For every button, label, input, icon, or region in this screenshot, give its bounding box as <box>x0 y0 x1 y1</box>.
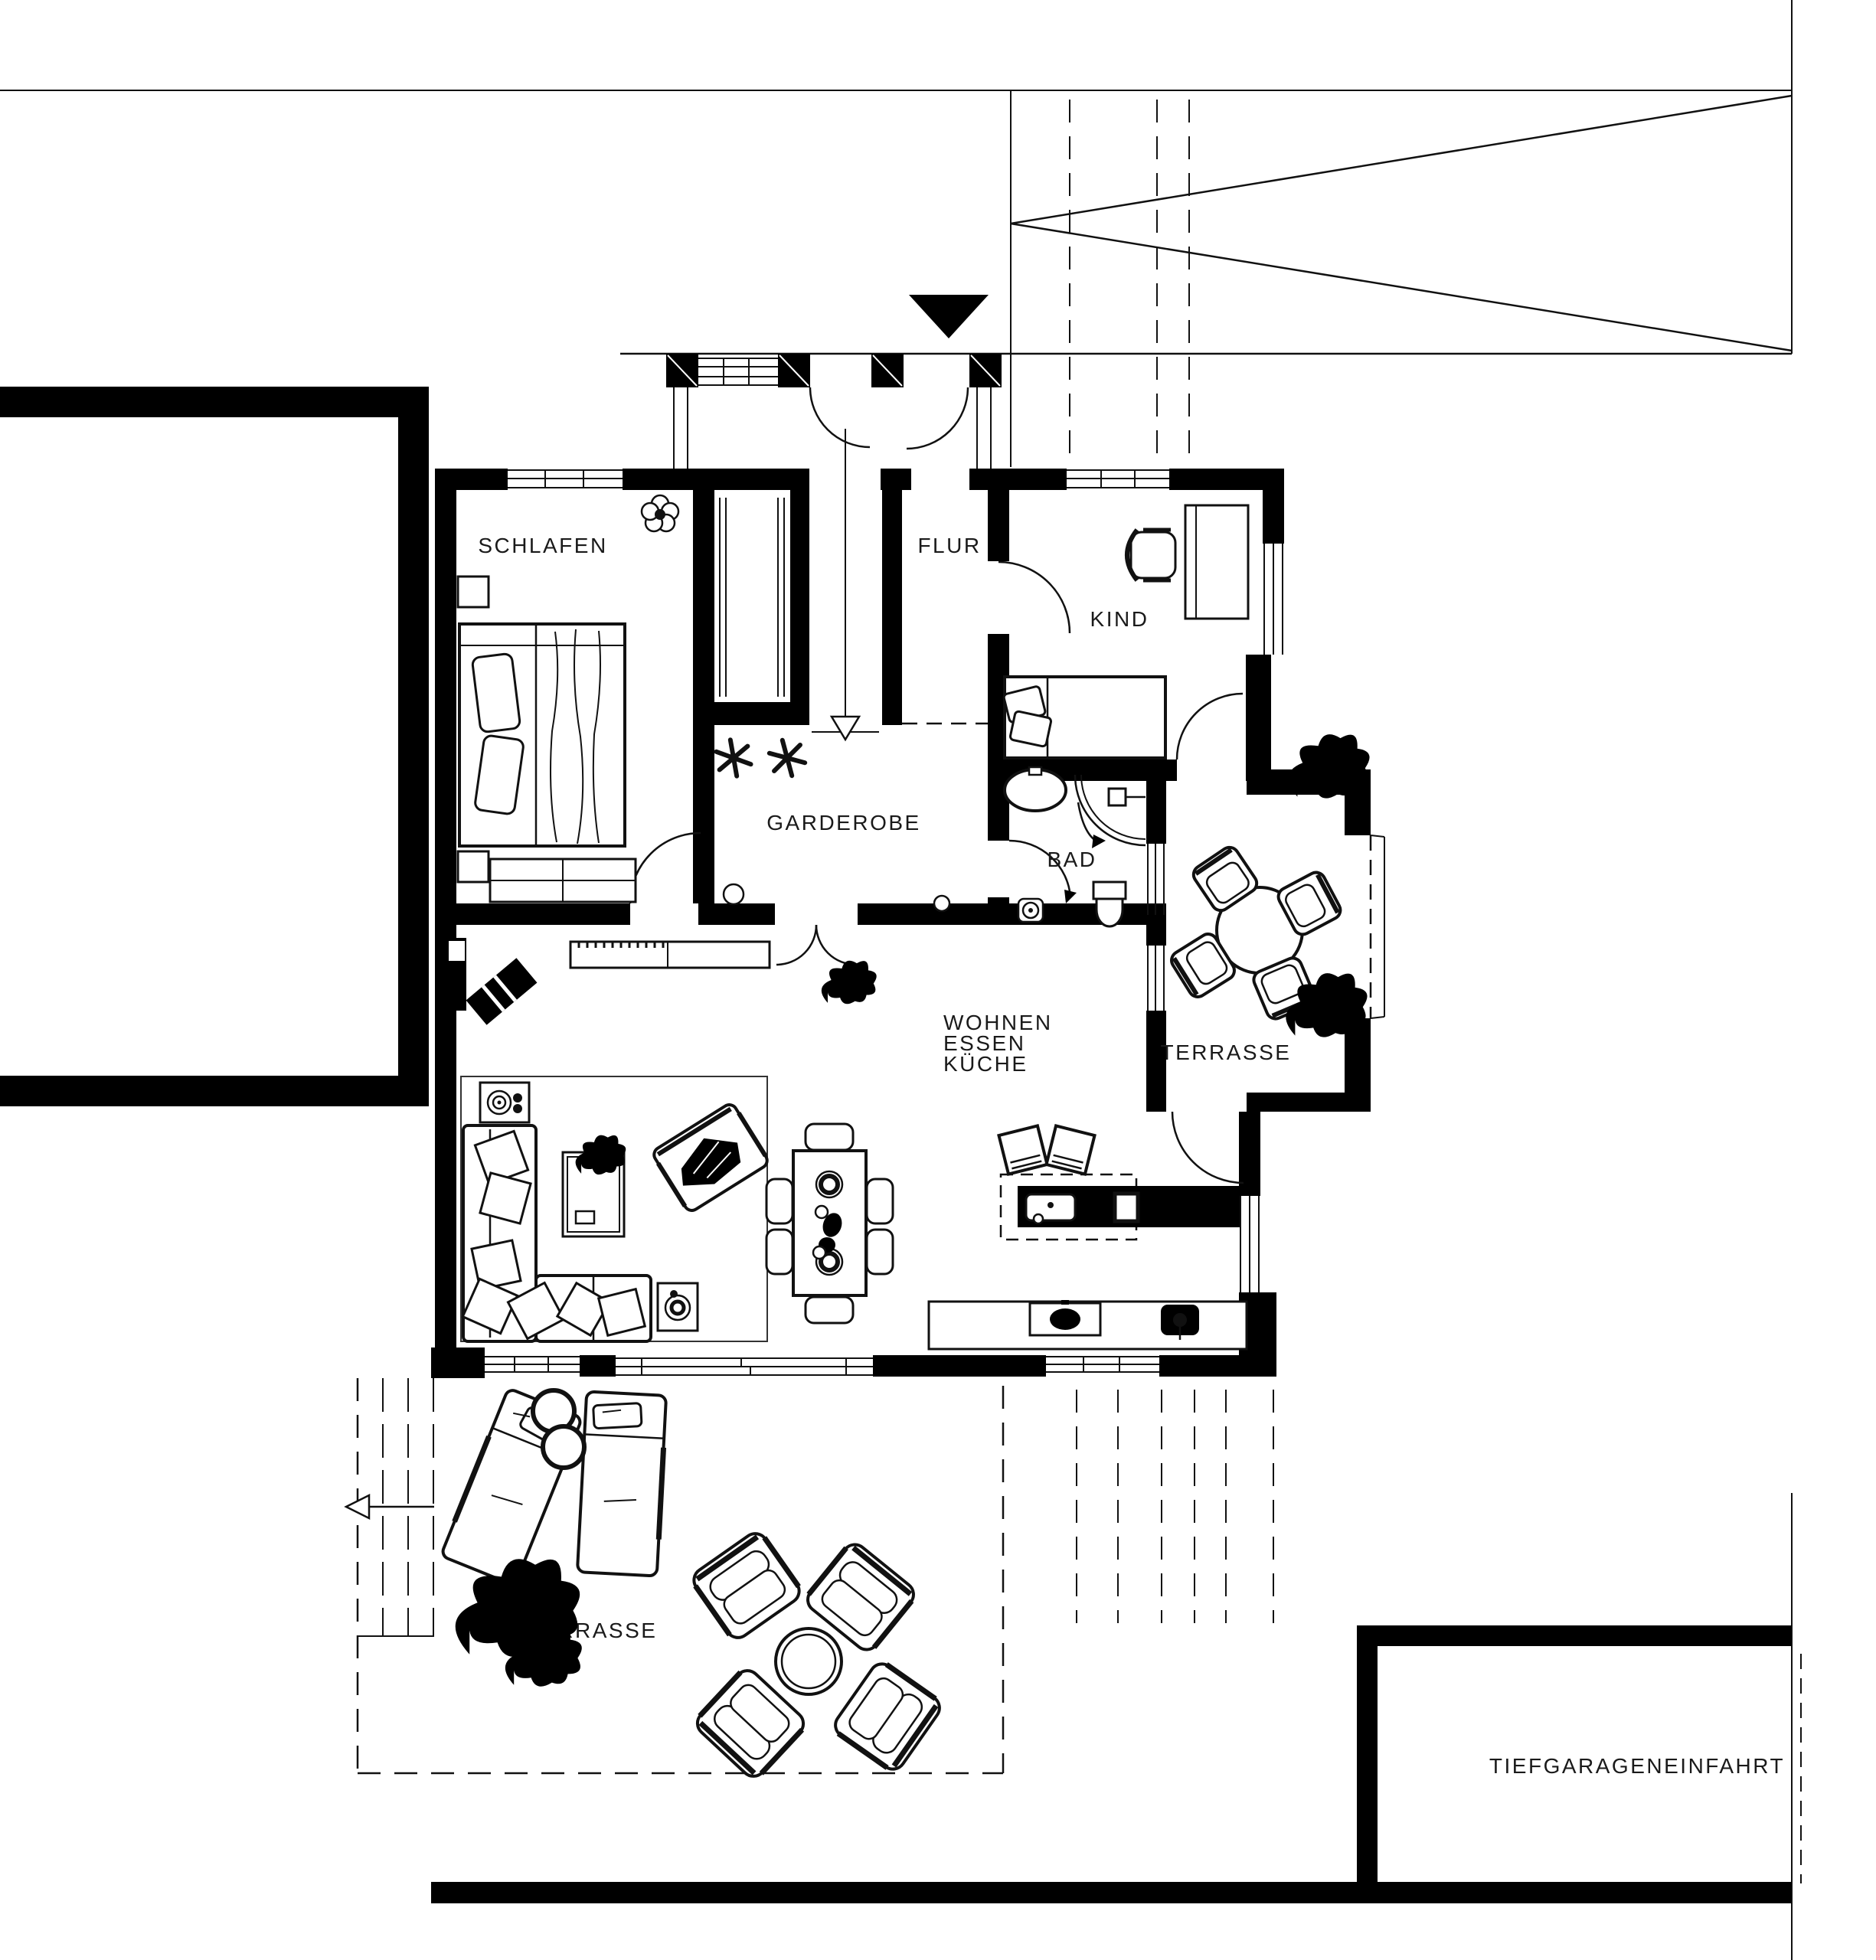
wardrobe <box>490 859 636 902</box>
entrance-marker-icon <box>909 295 989 338</box>
washbasin <box>1005 767 1066 811</box>
kind-flur-door-swing <box>998 562 1070 633</box>
dining-table <box>793 1151 866 1295</box>
room-label-kind: KIND <box>1090 607 1149 631</box>
coat-hook-icon <box>716 740 805 776</box>
garage-ramp-zigzag <box>1011 96 1792 351</box>
terrace-door-swing <box>1172 1112 1244 1183</box>
floor-plan-canvas: TIEFGARAGENEINFAHRT <box>0 0 1876 1960</box>
room-label-garderobe: GARDEROBE <box>766 811 920 835</box>
sideboard <box>570 942 770 968</box>
desk-chair <box>1127 530 1175 580</box>
terrace-south: TERRASSE <box>346 1378 1003 1782</box>
exterior-steps <box>346 1378 434 1636</box>
floor-drain <box>1018 899 1043 922</box>
lounge-chair <box>652 1102 770 1213</box>
plant-icon <box>642 495 678 531</box>
room-label-terrasse-east: TERRASSE <box>1161 1040 1292 1064</box>
room-label-flur: FLUR <box>917 534 981 557</box>
room-schlafen: SCHLAFEN <box>458 495 784 902</box>
coffee-table <box>563 1135 626 1236</box>
desk <box>1185 505 1248 619</box>
schlafen-door-swing <box>630 833 701 903</box>
armchair <box>831 1659 944 1774</box>
nightstand <box>458 577 489 607</box>
underground-garage: TIEFGARAGENEINFAHRT <box>1357 1625 1792 1882</box>
label-tiefgarageneinfahrt: TIEFGARAGENEINFAHRT <box>1489 1754 1785 1778</box>
side-table <box>480 1083 529 1122</box>
porch-window <box>698 358 778 385</box>
room-label-bad: BAD <box>1047 848 1097 871</box>
nightstand <box>458 851 489 882</box>
room-label-kueche: KÜCHE <box>943 1052 1028 1076</box>
entry-axis-arrow-icon <box>812 429 879 740</box>
bar-stool <box>998 1125 1047 1174</box>
toilet <box>1093 882 1126 926</box>
room-bad: BAD <box>1005 767 1146 926</box>
neighbor-building <box>0 387 429 1106</box>
sun-lounger <box>577 1391 666 1576</box>
fireplace <box>445 938 537 1025</box>
room-kind: KIND <box>1003 505 1248 758</box>
double-bed <box>459 624 625 846</box>
site-boundary <box>0 0 1801 1960</box>
armchair <box>689 1529 804 1642</box>
entrance-porch <box>666 295 1002 740</box>
terrace-seating-group <box>689 1529 944 1782</box>
floor-plan-svg: TIEFGARAGENEINFAHRT <box>0 0 1876 1960</box>
kitchen-island <box>1001 1174 1240 1240</box>
column-marker <box>934 896 949 911</box>
room-label-schlafen: SCHLAFEN <box>478 534 607 557</box>
shower <box>1075 775 1146 848</box>
kid-bed <box>1003 677 1165 758</box>
side-table <box>658 1283 698 1331</box>
garderobe-double-door-swing <box>776 925 816 965</box>
side-table-round <box>543 1426 584 1468</box>
tree-icon <box>456 1559 582 1717</box>
kind-door-swing <box>1177 694 1243 759</box>
flur-door-swing <box>907 387 968 449</box>
kitchen-counter <box>929 1300 1247 1349</box>
entry-door-swing <box>810 387 870 447</box>
bar-stool <box>1046 1125 1094 1174</box>
